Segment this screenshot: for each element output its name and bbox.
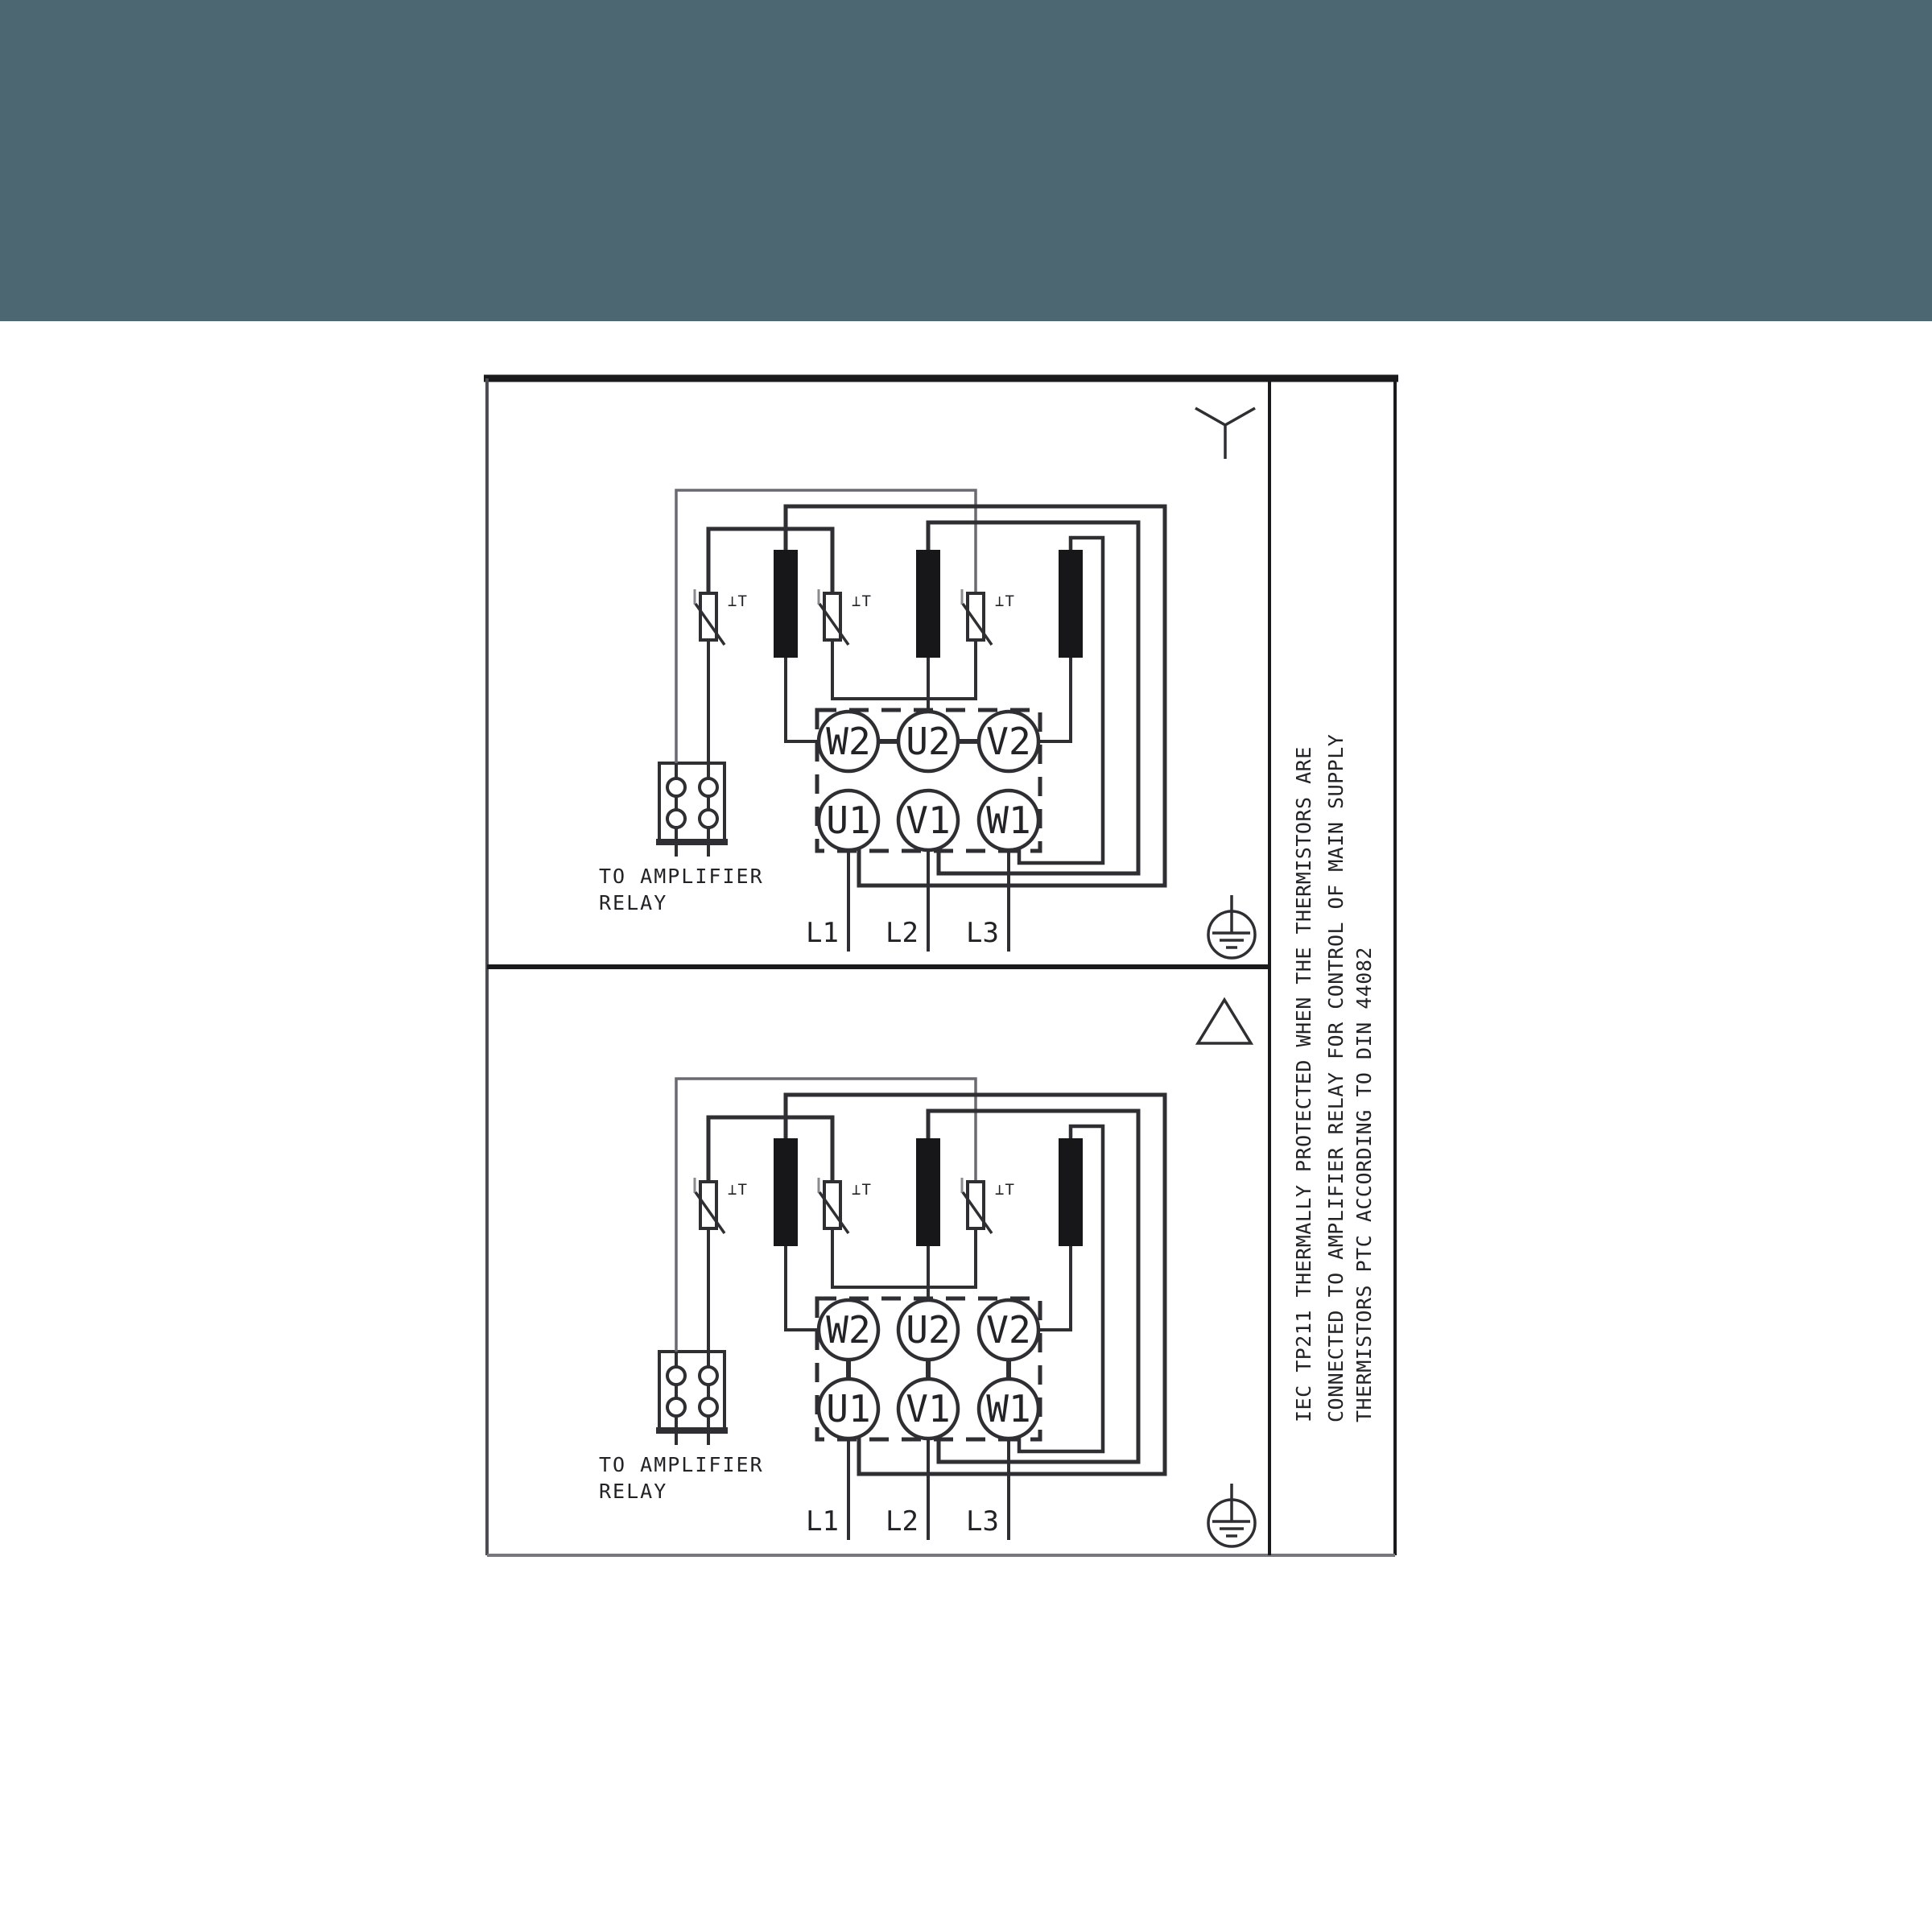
winding-bar	[774, 1138, 798, 1246]
thermistor-label: ⊥T	[852, 592, 872, 610]
thermistor: ⊥T	[962, 1178, 1015, 1233]
relay-terminal-circle	[667, 810, 685, 828]
thermistor-body	[700, 1182, 716, 1228]
thermistor-body	[824, 1182, 840, 1228]
thermistor: ⊥T	[695, 1178, 748, 1233]
wire-segment	[708, 529, 832, 593]
frame	[484, 378, 1398, 1555]
delta-icon	[1198, 1000, 1251, 1043]
terminal-label-u1: U1	[826, 799, 870, 842]
terminal-label-u2: U2	[906, 720, 950, 763]
relay-note-line-1: TO AMPLIFIER	[599, 865, 764, 888]
relay-terminal-block	[659, 763, 724, 842]
relay-terminal-block	[659, 1352, 724, 1430]
winding-bar	[916, 1138, 940, 1246]
winding-bar	[1059, 1138, 1083, 1246]
thermistor-body	[700, 593, 716, 640]
thermistor: ⊥T	[695, 589, 748, 645]
supply-line-label-l3: L3	[966, 917, 999, 949]
relay-note-line-2: RELAY	[599, 891, 667, 914]
supply-line-label-l2: L2	[885, 1505, 919, 1538]
supply-line-label-l2: L2	[885, 917, 919, 949]
thermistor-body	[968, 1182, 984, 1228]
thermistor: ⊥T	[819, 1178, 872, 1233]
star-icon	[1195, 408, 1255, 459]
terminal-label-u2: U2	[906, 1308, 950, 1352]
thermistor: ⊥T	[962, 589, 1015, 645]
thermistor-body	[968, 593, 984, 640]
wire-segment	[832, 640, 976, 699]
supply-line-label-l3: L3	[966, 1505, 999, 1538]
wire-segment	[786, 1246, 819, 1330]
relay-terminal-circle	[667, 1398, 685, 1416]
wire-segment	[708, 1117, 832, 1182]
section-star: ⊥T⊥T⊥TW2U2V2U1V1W1L1L2L3TO AMPLIFIERRELA…	[599, 408, 1255, 958]
side-note-line-2: CONNECTED TO AMPLIFIER RELAY FOR CONTROL…	[1324, 734, 1348, 1422]
winding-bar	[1059, 550, 1083, 658]
thermistor-label: ⊥T	[995, 1181, 1015, 1199]
terminal-label-w2: W2	[826, 1308, 870, 1352]
thermistor-label: ⊥T	[728, 592, 748, 610]
supply-line-label-l1: L1	[806, 1505, 839, 1538]
side-note-line-1: IEC TP211 THERMALLY PROTECTED WHEN THE T…	[1292, 746, 1315, 1422]
thermistor-body	[824, 593, 840, 640]
star-arm	[1195, 408, 1225, 425]
terminal-label-w2: W2	[826, 720, 870, 763]
wire-segment	[832, 1228, 976, 1287]
winding-bar	[774, 550, 798, 658]
terminal-label-v2: V2	[986, 1308, 1030, 1352]
supply-line-label-l1: L1	[806, 917, 839, 949]
relay-terminal-circle	[667, 1367, 685, 1385]
relay-terminal-circle	[700, 778, 717, 796]
relay-note-line-1: TO AMPLIFIER	[599, 1453, 764, 1476]
wire-segment	[1038, 658, 1071, 741]
earth-ground-icon	[1208, 1484, 1255, 1546]
relay-terminal-circle	[700, 1398, 717, 1416]
wiring-diagram-canvas: ⊥T⊥T⊥TW2U2V2U1V1W1L1L2L3TO AMPLIFIERRELA…	[0, 0, 1932, 1932]
thermistor-label: ⊥T	[728, 1181, 748, 1199]
relay-note-line-2: RELAY	[599, 1480, 667, 1503]
terminal-label-v2: V2	[986, 720, 1030, 763]
terminal-label-w1: W1	[986, 799, 1030, 842]
relay-terminal-circle	[700, 1367, 717, 1385]
winding-bar	[916, 550, 940, 658]
relay-terminal-circle	[700, 810, 717, 828]
terminal-label-v1: V1	[906, 799, 950, 842]
earth-ground-icon	[1208, 895, 1255, 958]
thermistor-label: ⊥T	[852, 1181, 872, 1199]
wire-segment	[1038, 1246, 1071, 1330]
wire-segment	[786, 658, 819, 741]
thermistor: ⊥T	[819, 589, 872, 645]
terminal-label-u1: U1	[826, 1387, 870, 1430]
thermistor-label: ⊥T	[995, 592, 1015, 610]
side-note-line-3: THERMISTORS PTC ACCORDING TO DIN 44082	[1352, 947, 1376, 1422]
star-arm	[1225, 408, 1255, 425]
terminal-label-w1: W1	[986, 1387, 1030, 1430]
terminal-label-v1: V1	[906, 1387, 950, 1430]
section-delta: ⊥T⊥T⊥TW2U2V2U1V1W1L1L2L3TO AMPLIFIERRELA…	[599, 1000, 1255, 1546]
relay-terminal-circle	[667, 778, 685, 796]
